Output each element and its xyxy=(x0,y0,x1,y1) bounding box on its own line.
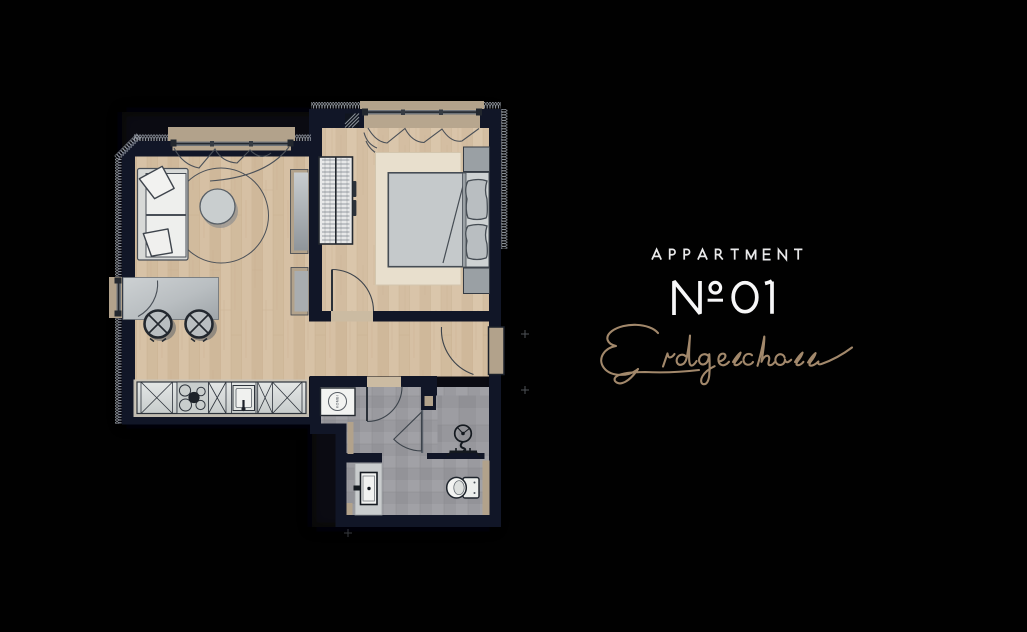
svg-text:KOMBI: KOMBI xyxy=(336,395,340,408)
